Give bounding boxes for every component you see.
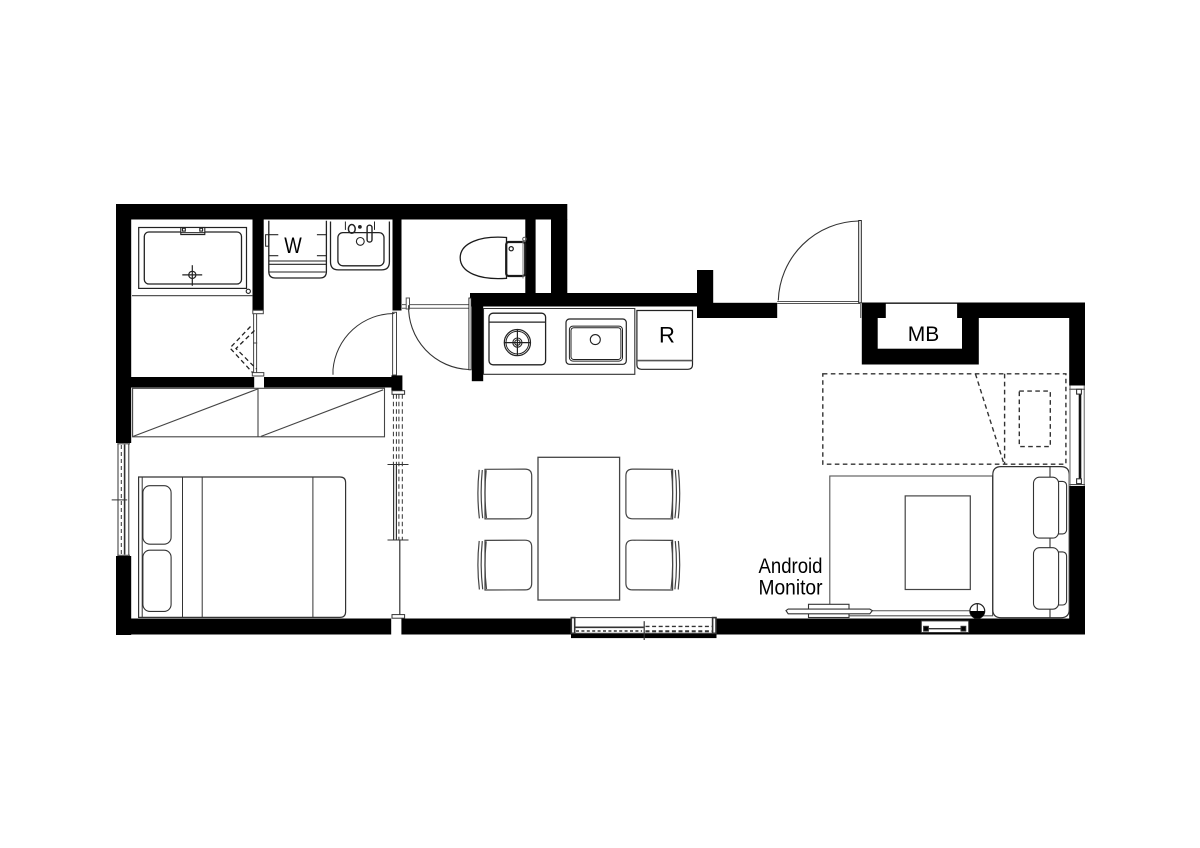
svg-text:W: W	[284, 233, 302, 258]
svg-text:MB: MB	[908, 322, 940, 346]
svg-text:R: R	[659, 323, 675, 348]
svg-text:Monitor: Monitor	[759, 576, 823, 600]
svg-text:Android: Android	[759, 554, 823, 578]
